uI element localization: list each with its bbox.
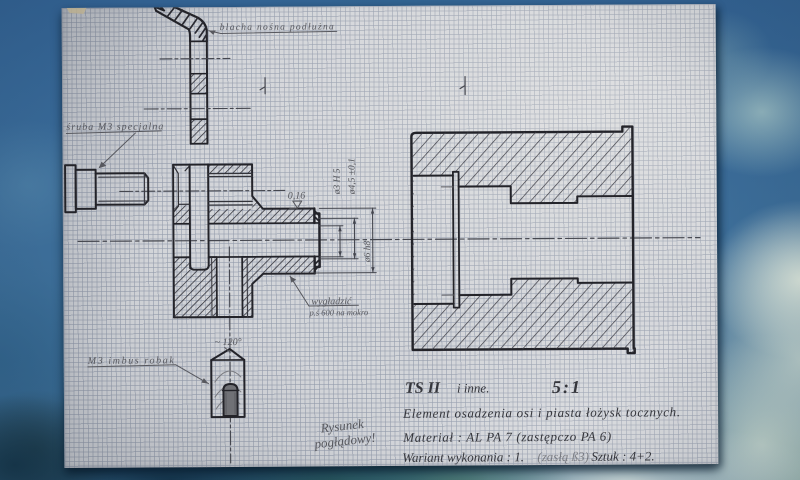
svg-text:~ 120°: ~ 120° — [215, 337, 242, 348]
svg-text:ø4,5 ±0,1: ø4,5 ±0,1 — [348, 158, 358, 195]
svg-text:Sztuk : 4+2.: Sztuk : 4+2. — [591, 448, 654, 463]
svg-text:Element osadzenia osi i piasta: Element osadzenia osi i piasta łożysk to… — [402, 404, 680, 421]
svg-text:(zasłą ß3): (zasłą ß3) — [537, 449, 589, 464]
svg-text:p.ś 600 na mokro: p.ś 600 na mokro — [308, 307, 368, 317]
svg-text:TS II: TS II — [405, 380, 441, 397]
svg-text:Wariant wykonania : 1.: Wariant wykonania : 1. — [402, 449, 524, 465]
svg-text:ø6 h8: ø6 h8 — [363, 240, 373, 263]
svg-text:5:1: 5:1 — [552, 377, 582, 397]
svg-text:i inne.: i inne. — [457, 380, 490, 395]
svg-text:Materiał : AL PA 7 (zastępczo: Materiał : AL PA 7 (zastępczo PA 6) — [402, 429, 611, 445]
svg-text:ø3 H 5: ø3 H 5 — [333, 168, 343, 195]
svg-text:0,16: 0,16 — [288, 191, 306, 202]
